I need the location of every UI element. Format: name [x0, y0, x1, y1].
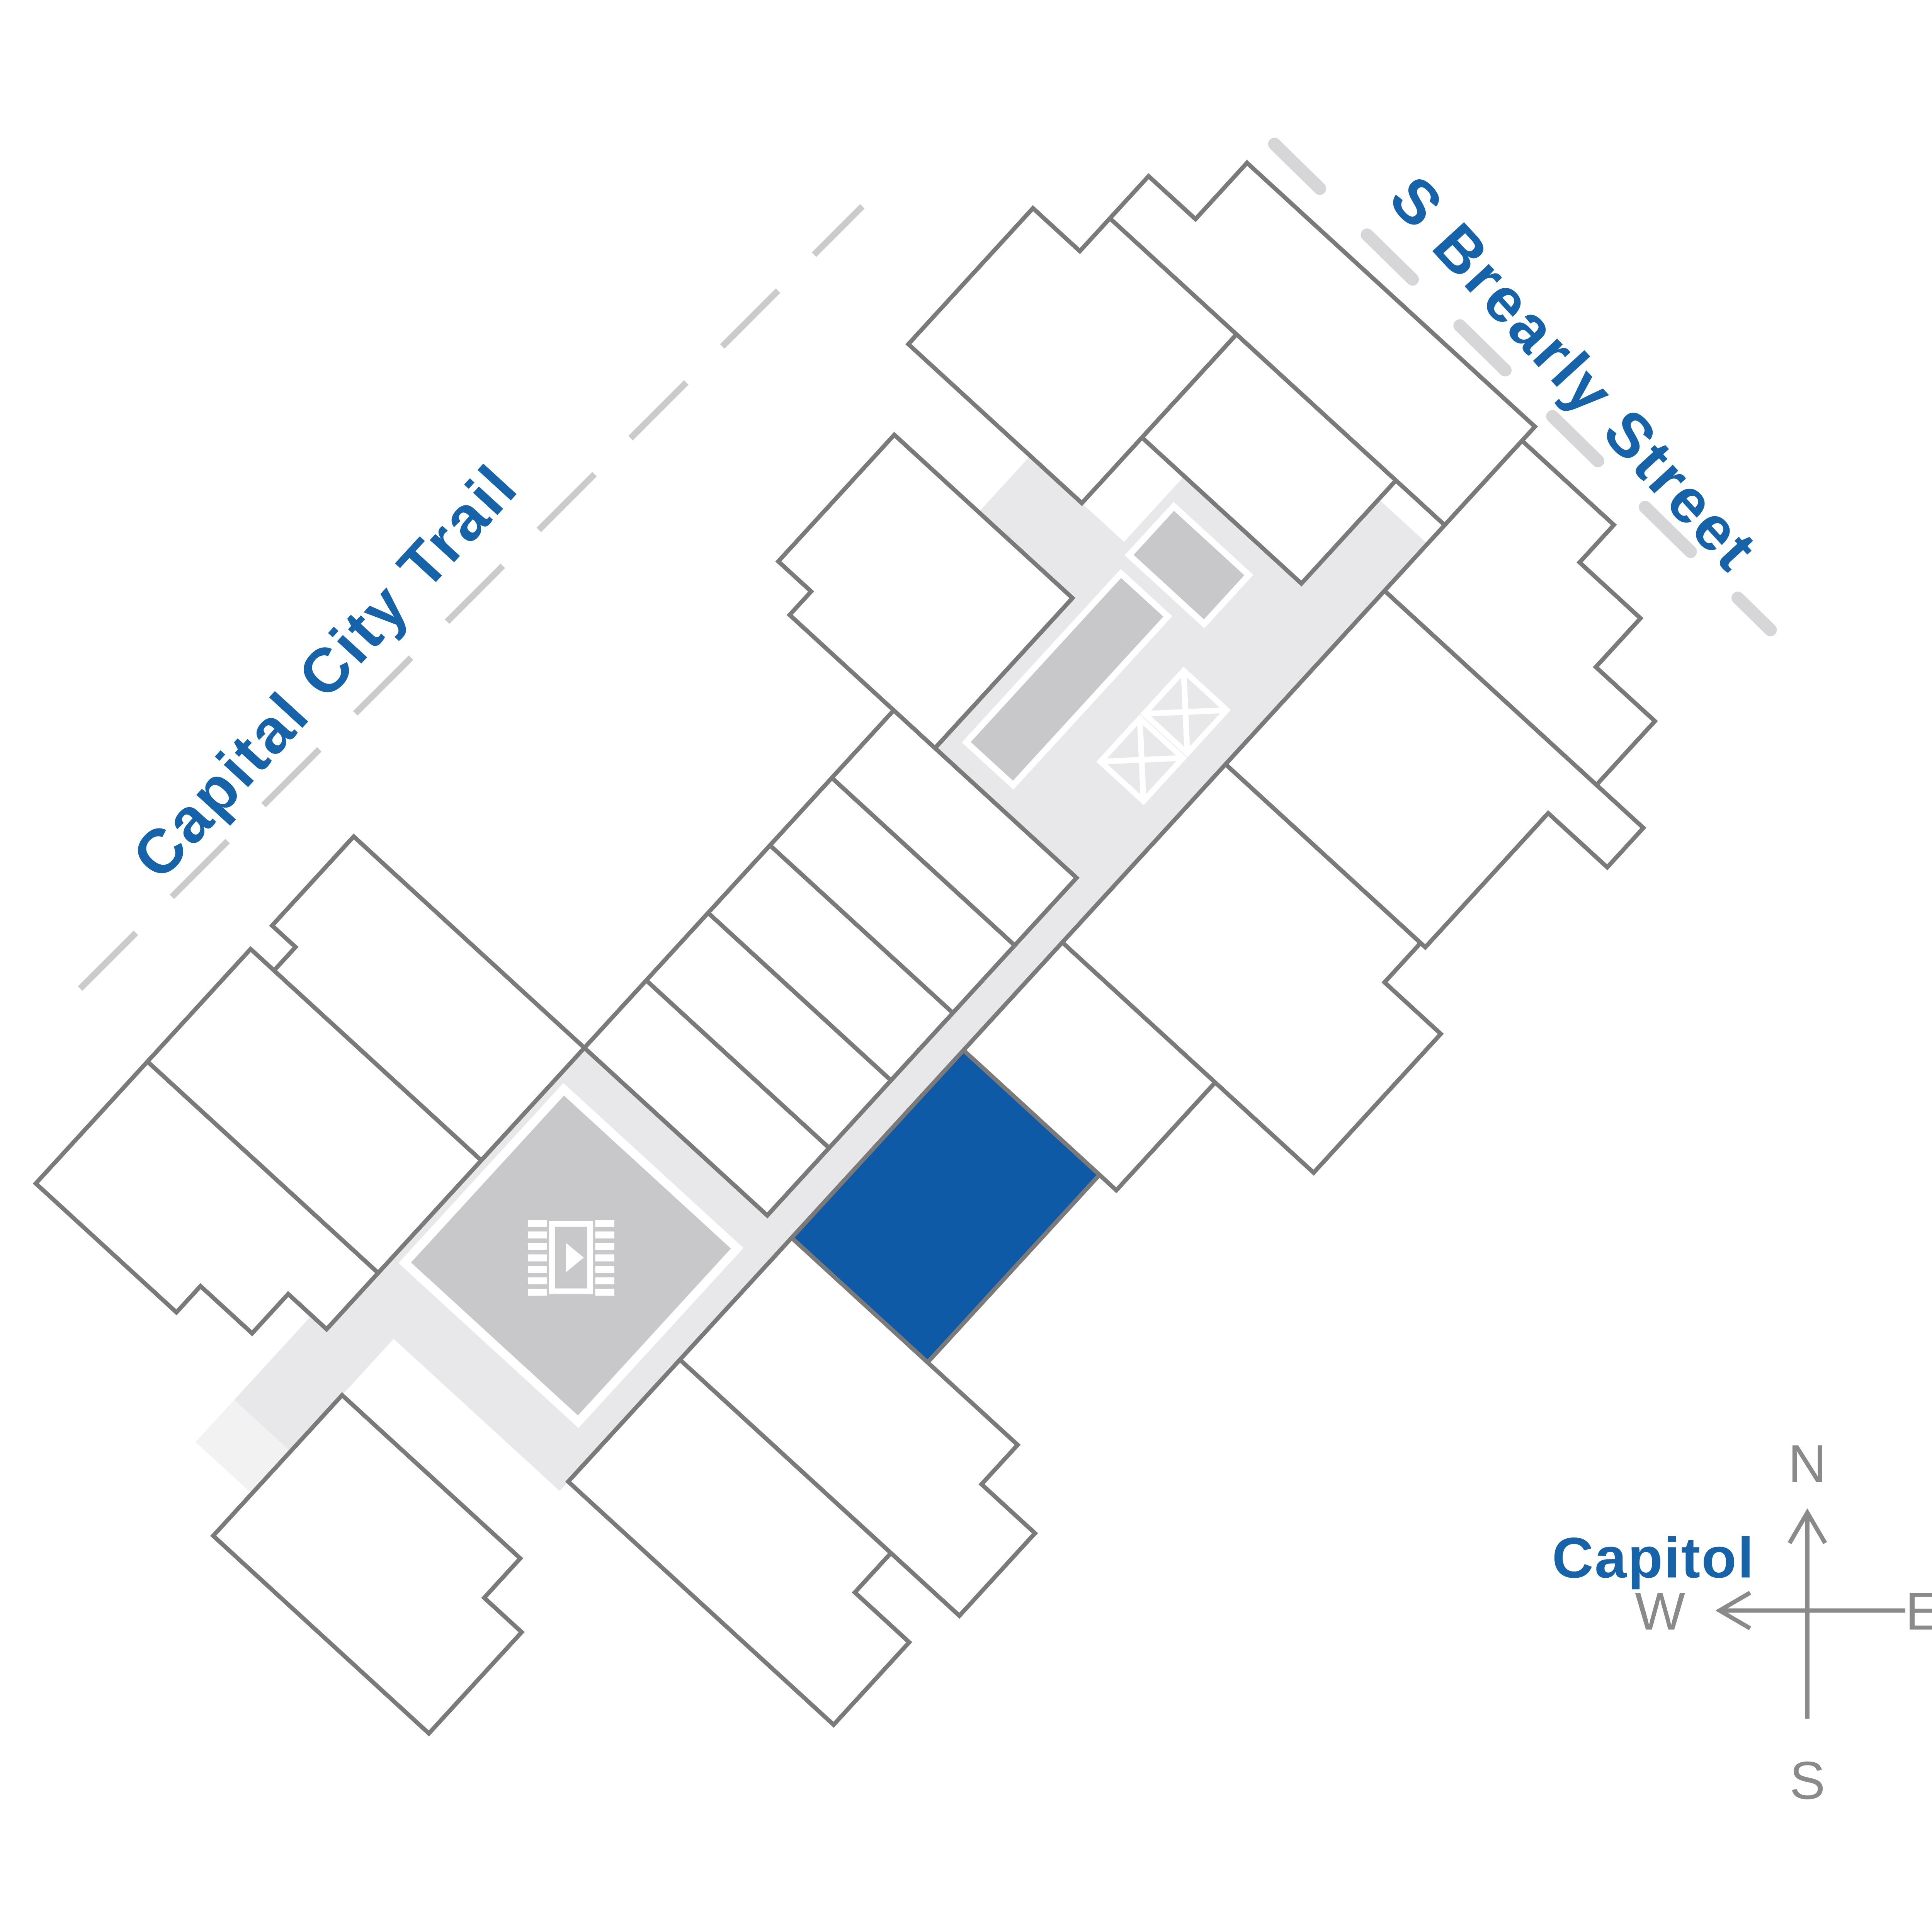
trail-label: Capital City Trail	[119, 451, 531, 892]
compass-east-label: E	[1905, 1582, 1932, 1641]
compass-north-label: N	[1788, 1434, 1827, 1494]
compass-west-label: W	[1635, 1582, 1685, 1641]
site-plan-svg: Capital City Trail S Brearly Street Capi…	[0, 0, 1932, 1932]
compass-rose: N S W E	[1635, 1434, 1932, 1811]
compass-south-label: S	[1789, 1751, 1825, 1810]
site-plan-map: Capital City Trail S Brearly Street Capi…	[0, 0, 1932, 1932]
capitol-label: Capitol	[1552, 1526, 1755, 1590]
